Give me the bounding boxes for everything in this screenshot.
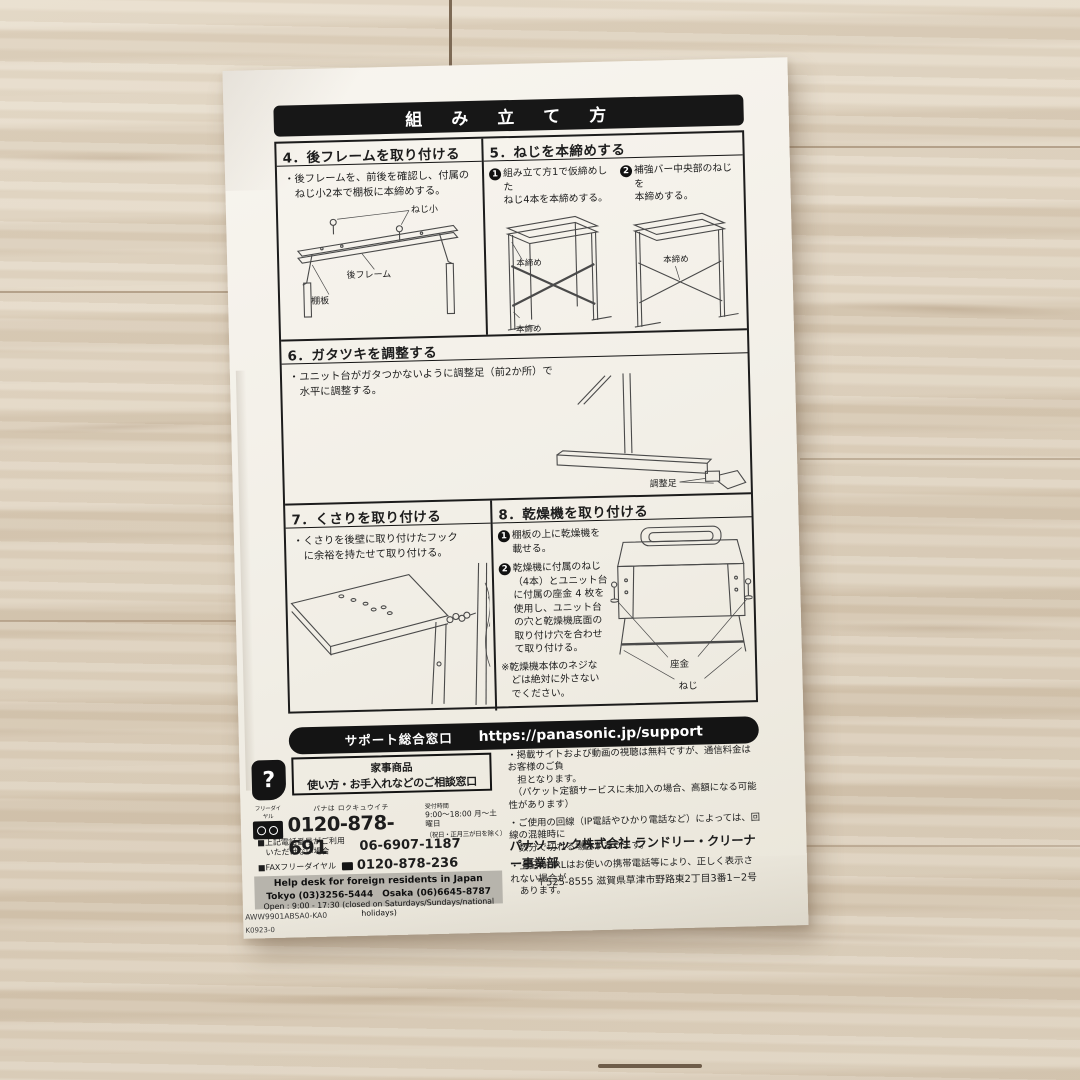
model-code: AWW9901ABSA0-KA0 [245,911,327,922]
fax-icon [342,862,353,870]
floor-plank-seam [0,291,250,293]
contact-block: ? 家事商品 使い方・お手入れなどのご相談窓口 フリーダイヤル パナは ロクキュ… [249,752,501,758]
label-chousei-ashi: 調整足 [650,477,677,490]
instruction-sheet: 組 み 立 て 方 4．後フレームを取り付ける ・後フレームを、前後を確認し、付… [222,57,808,939]
photo-of-instruction-sheet: 組 み 立 て 方 4．後フレームを取り付ける ・後フレームを、前後を確認し、付… [0,0,1080,1080]
wood-grain-streak [120,985,640,1012]
wood-grain-streak [780,294,1080,324]
step-number-badge: 1 [498,530,510,542]
step-number-badge: 2 [499,563,511,575]
label-honjime: 本締め [663,253,689,265]
section-8: 8．乾燥機を取り付ける 1 棚板の上に乾燥機を 載せる。 2 乾燥機に付属のねじ… [492,494,756,710]
freedial-icon [253,821,283,840]
step-number-badge: 2 [620,165,632,177]
freedial-label: フリーダイヤル [252,804,283,821]
support-url: https://panasonic.jp/support [478,723,703,744]
label-ato-frame: 後フレーム [346,268,391,281]
label-neji-sho: ねじ小 [411,204,438,216]
section-5-diagram-right: 本締め [618,202,741,337]
alt-phone-number: 06-6907-1187 [359,836,461,853]
assembly-title: 組 み 立 て 方 [405,101,613,131]
floor-plank-seam [805,845,1080,847]
assembly-title-bar: 組 み 立 て 方 [273,94,744,136]
document-codes: AWW9901ABSA0-KA0 K0923-0 [245,911,328,935]
section-7-body: ・くさりを後壁に取り付けたフック に余裕を持たせて取り付ける。 [286,524,492,564]
fax-label: ■FAXフリーダイヤル [258,860,342,873]
section-4-body: ・後フレームを、前後を確認し、付属の ねじ小2本で棚板に本締めする。 [277,162,483,202]
section-5: 5．ねじを本締めする 1 組み立て方1で仮締めした ねじ4本を本締めする。 2 … [483,132,747,334]
fax-number: 0120-878-236 [357,856,459,873]
foreign-help-desk-band: Help desk for foreign residents in Japan… [254,870,503,909]
instruction-grid: 4．後フレームを取り付ける ・後フレームを、前後を確認し、付属の ねじ小2本で棚… [274,130,758,713]
question-mark-icon: ? [251,760,286,801]
company-name: パナソニック株式会社 ランドリー・クリーナー事業部 [509,830,764,872]
consultation-title: 使い方・お手入れなどのご相談窓口 [294,773,490,794]
floor-plank-seam [449,0,452,74]
usage-note: ・掲載サイトおよび動画の視聴は無料ですが、通信料金はお客様のご負 担となります。… [507,744,760,812]
floor-plank-seam [598,1064,702,1068]
paper-crease [236,371,256,791]
company-block: パナソニック株式会社 ランドリー・クリーナー事業部 〒525-8555 滋賀県草… [509,830,764,889]
label-zagane: 座金 [670,658,690,670]
section-8-note: ※乾燥機本体のネジな どは絶対に外さない でください。 [501,658,611,701]
section-7-diagram [289,563,492,710]
label-tanaita: 棚板 [311,295,329,307]
floor-plank-seam [800,458,1080,460]
revision-code: K0923-0 [245,925,327,935]
section-6: 6．ガタツキを調整する ・ユニット台がガタつかないように調整足（前2か所）で 水… [281,328,751,503]
section-5-step-2: 2 補強バー中央部のねじを 本締めする。 [620,161,742,204]
step-number-badge: 1 [489,168,501,180]
label-neji: ねじ [679,681,698,692]
section-4-diagram: ねじ小 後フレーム 棚板 [281,199,484,320]
wood-grain-streak [620,925,1040,950]
wood-grain-streak [760,620,1080,636]
label-honjime: 本締め [516,257,542,269]
hours-main: 9:00～18:00 月～土曜日 [425,808,503,829]
section-4: 4．後フレームを取り付ける ・後フレームを、前後を確認し、付属の ねじ小2本で棚… [276,139,488,340]
support-window-label: サポート総合窓口 [344,728,452,750]
alt-phone-label: ■上記電話番号がご利用 いただけない場合 [257,836,359,858]
floor-plank-seam [0,620,240,622]
section-6-diagram: 調整足 [519,370,747,495]
section-8-step-2: 2 乾燥機に付属のねじ （4本）とユニット台 に付属の座金 4 枚を 使用し、ユ… [499,560,610,657]
section-5-diagram-left: 本締め 本締め [491,205,614,340]
section-7: 7．くさりを取り付ける ・くさりを後壁に取り付けたフック に余裕を持たせて取り付… [285,501,497,716]
consultation-box: 家事商品 使い方・お手入れなどのご相談窓口 [291,753,492,796]
section-8-diagram: 座金 ねじ [609,519,755,704]
section-5-step-1: 1 組み立て方1で仮締めした ねじ4本を本締めする。 [489,165,614,209]
section-8-step-1: 1 棚板の上に乾燥機を 載せる。 [498,527,608,557]
